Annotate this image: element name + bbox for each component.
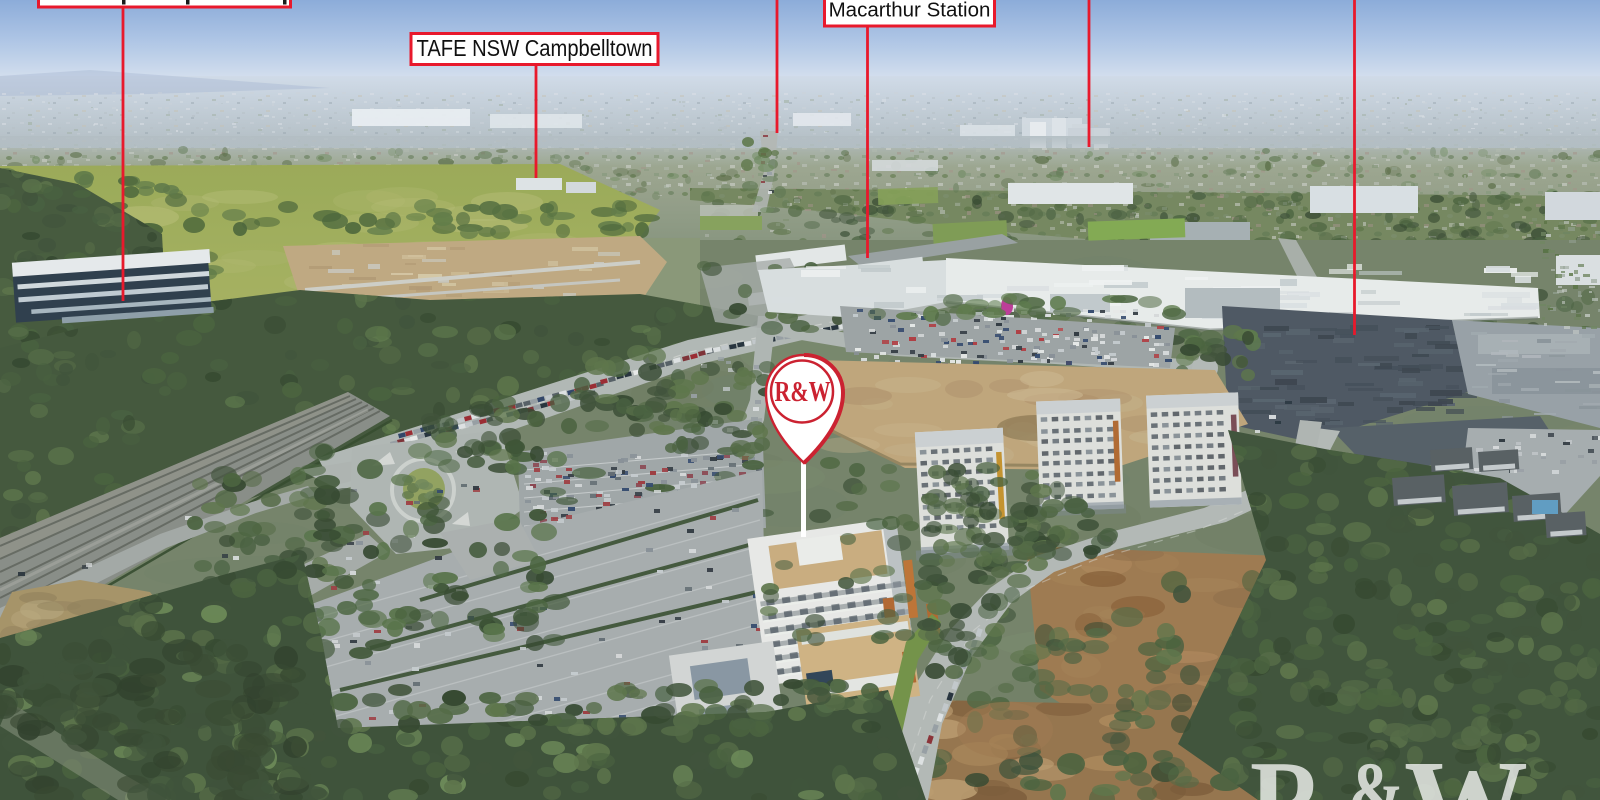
svg-text:&: & (1348, 745, 1404, 800)
svg-text:TAFE NSW Campbelltown: TAFE NSW Campbelltown (417, 35, 653, 61)
svg-text:Macarthur Station: Macarthur Station (829, 0, 991, 22)
svg-text:R&W: R&W (775, 377, 831, 408)
svg-text:W: W (1404, 734, 1528, 800)
svg-text:R: R (1250, 738, 1326, 800)
